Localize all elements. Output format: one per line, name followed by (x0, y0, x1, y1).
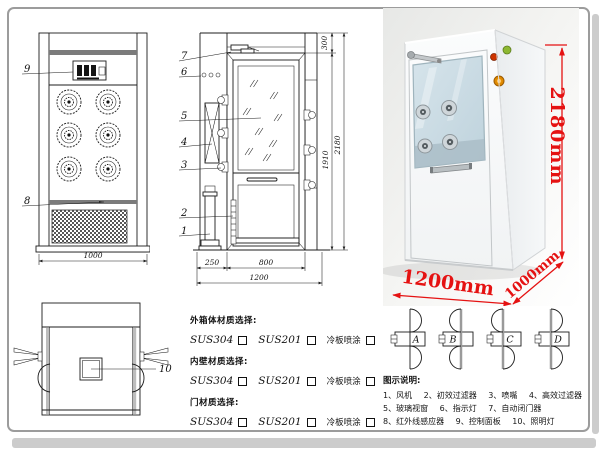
option-label: SUS304 (190, 334, 233, 346)
checkbox-innerwall-sus201[interactable] (307, 377, 316, 386)
photo-height-dim: 2180mm (546, 86, 568, 185)
door-option-b: B (437, 306, 479, 372)
option-label: SUS201 (258, 375, 301, 387)
section-drawing: 250 800 1200 300 1910 2180 7 6 5 4 3 2 1 (175, 20, 350, 303)
option-label: 冷板喷涂 (327, 375, 361, 387)
plan-view-drawing: 10 (10, 298, 178, 446)
material-section-title-door: 门材质选择: (190, 396, 390, 408)
option-label: SUS304 (190, 375, 233, 387)
door-option-a: A (389, 306, 431, 372)
checkbox-door-sus304[interactable] (238, 418, 247, 427)
plan-wall-right (133, 328, 136, 414)
dim-250: 250 (204, 258, 220, 267)
legend-items: 1、风机 2、初效过滤器 3、喷嘴 4、高效过滤器 5、玻璃视窗 6、指示灯 7… (383, 389, 595, 428)
option-label: 冷板喷涂 (327, 416, 361, 428)
material-section-title-outerbox: 外箱体材质选择: (190, 314, 390, 326)
legend-item-indicator: 6、指示灯 (440, 402, 477, 415)
blower-fan-section (199, 186, 221, 250)
parts-legend: 图示说明: 1、风机 2、初效过滤器 3、喷嘴 4、高效过滤器 5、玻璃视窗 6… (383, 374, 595, 428)
legend-item-prefilter: 2、初效过滤器 (424, 389, 477, 402)
legend-item-infrared: 8、红外线感应器 (383, 415, 444, 428)
callout-2-prefilter: 2 (180, 208, 187, 219)
legend-item-panel: 9、控制面板 (456, 415, 501, 428)
door-handle-section (247, 178, 277, 181)
indicator-lights-section (202, 73, 220, 77)
door-option-b-label: B (449, 335, 457, 346)
option-label: SUS201 (258, 416, 301, 428)
door-option-d-label: D (553, 335, 562, 346)
dim-800: 800 (259, 258, 274, 267)
option-label: SUS201 (258, 334, 301, 346)
legend-item-lamp: 10、照明灯 (512, 415, 554, 428)
door-option-c: C (485, 306, 527, 372)
dim-1910: 1910 (321, 150, 330, 169)
prefilter-strip (231, 200, 236, 244)
front-top-trim-bar (49, 50, 137, 55)
callout-9-control-panel: 9 (24, 64, 31, 75)
plan-wall-left (46, 328, 49, 414)
callout-6-indicator: 6 (181, 67, 188, 78)
callout-5-glass: 5 (181, 111, 187, 122)
option-label: SUS304 (190, 416, 233, 428)
front-width-dim-text: 1000 (83, 251, 102, 260)
checkbox-outerbox-coldplate[interactable] (366, 336, 375, 345)
checkbox-innerwall-coldplate[interactable] (366, 377, 375, 386)
checkbox-outerbox-sus304[interactable] (238, 336, 247, 345)
dim-300: 300 (320, 36, 329, 51)
checkbox-outerbox-sus201[interactable] (307, 336, 316, 345)
checkbox-door-sus201[interactable] (307, 418, 316, 427)
callout-8-grille: 8 (24, 196, 30, 207)
material-options-door: SUS304 SUS201 冷板喷涂 (190, 416, 390, 428)
checkbox-innerwall-sus304[interactable] (238, 377, 247, 386)
dim-2180: 2180 (333, 135, 342, 155)
door-option-c-label: C (506, 335, 514, 346)
control-panel (73, 61, 106, 80)
green-indicator-light (503, 46, 511, 54)
section-height-dimensions: 300 1910 2180 (305, 33, 348, 250)
legend-item-nozzle: 3、喷嘴 (488, 389, 517, 402)
legend-title: 图示说明: (383, 374, 595, 386)
front-elevation-drawing: 1000 9 8 (18, 28, 150, 270)
material-options-innerwall: SUS304 SUS201 冷板喷涂 (190, 375, 390, 387)
frame-shadow-right (592, 14, 599, 434)
legend-item-hepa: 4、高效过滤器 (529, 389, 582, 402)
door-closer-section (231, 45, 259, 53)
door-option-a-label: A (412, 335, 420, 346)
door-option-d: D (533, 306, 575, 372)
callout-10-lamp: 10 (159, 364, 172, 375)
checkbox-door-coldplate[interactable] (366, 418, 375, 427)
section-bottom-dimensions: 250 800 1200 (197, 252, 322, 286)
legend-item-closer: 7、自动闭门器 (488, 402, 541, 415)
material-selection-form: 外箱体材质选择: SUS304 SUS201 冷板喷涂 内壁材质选择: SUS3… (190, 312, 390, 428)
hepa-filter-box (205, 103, 219, 163)
product-photo: 2180mm 1200mm 1000mm (383, 8, 579, 306)
front-width-dimension: 1000 (39, 251, 147, 265)
dim-1200: 1200 (249, 273, 268, 282)
legend-item-glass: 5、玻璃视窗 (383, 402, 428, 415)
option-label: 冷板喷涂 (327, 334, 361, 346)
legend-item-fan: 1、风机 (383, 389, 412, 402)
material-options-outerbox: SUS304 SUS201 冷板喷涂 (190, 334, 390, 346)
door-swing-options: A B C D (389, 306, 575, 372)
material-section-title-innerwall: 内壁材质选择: (190, 355, 390, 367)
swing-door-section (227, 45, 305, 250)
callout-3-nozzle: 3 (181, 160, 187, 171)
